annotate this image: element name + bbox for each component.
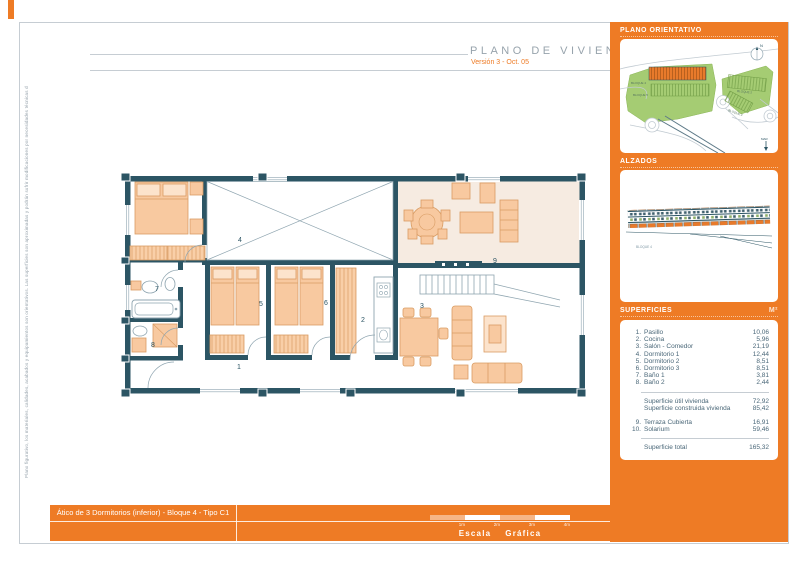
area-row: 2.Cocina5,96	[626, 336, 769, 343]
scale-label: 3m	[500, 522, 535, 527]
table-separator	[641, 438, 769, 439]
elevation-drawing: BLOQUE 4	[620, 170, 778, 302]
svg-text:BLOQUE 5: BLOQUE 5	[633, 93, 648, 97]
scale-label: 4m	[535, 522, 570, 527]
footer-vline	[236, 505, 237, 541]
section-title-orientativo: PLANO ORIENTATIVO	[620, 27, 778, 37]
room-label-salon: 3	[420, 303, 424, 310]
plan-caption: Ático de 3 Dormitorios (inferior) - Bloq…	[50, 505, 236, 521]
corner-mark	[8, 0, 14, 19]
sidebar: PLANO ORIENTATIVO	[610, 22, 788, 542]
room-label-pasillo: 1	[237, 364, 241, 371]
areas-table-box: 1.Pasillo10,06 2.Cocina5,96 3.Salón - Co…	[620, 320, 778, 460]
room-label-cocina: 2	[361, 317, 365, 324]
floor-plan: 1 2 3 4 5 6 7 8 9	[90, 165, 595, 410]
svg-text:MAR: MAR	[761, 137, 769, 141]
furniture-dormitorio2	[210, 267, 259, 353]
scale-label: 2m	[465, 522, 500, 527]
scale-title: EscalaGráfica	[430, 529, 570, 538]
building-facade	[628, 206, 770, 228]
void-cross	[207, 182, 393, 261]
main-avenue	[658, 116, 725, 153]
areas-table: 1.Pasillo10,06 2.Cocina5,96 3.Salón - Co…	[620, 320, 778, 452]
area-row: 1.Pasillo10,06	[626, 329, 769, 336]
area-row: 3.Salón - Comedor21,19	[626, 343, 769, 350]
furniture-salon	[400, 306, 522, 383]
furniture-cocina	[336, 268, 393, 353]
graphic-scale: 1m 2m 3m 4m EscalaGráfica	[430, 515, 570, 541]
area-row: 10.Solarium59,46	[626, 426, 769, 433]
room-label-dorm1: 4	[238, 237, 242, 244]
area-row: 6.Dormitorio 38,51	[626, 365, 769, 372]
title-rule	[90, 54, 468, 55]
plan-sheet: PLANO DE VIVIENDA Versión 3 - Oct. 05 Pl…	[0, 0, 800, 565]
area-row: 8.Baño 22,44	[626, 379, 769, 386]
highlighted-block	[649, 67, 706, 80]
area-row: 5.Dormitorio 28,51	[626, 358, 769, 365]
room-label-dorm3: 6	[324, 300, 328, 307]
north-arrow-icon: N	[751, 43, 763, 60]
total-row: Superficie total165,32	[626, 444, 769, 451]
site-map: BLOQUE 4 BLOQUE 5 BLOQUE 2 BLOQUE 3 N MA…	[620, 39, 778, 153]
room-label-bano1: 7	[155, 286, 159, 293]
footer-bar: Ático de 3 Dormitorios (inferior) - Bloq…	[50, 505, 612, 541]
subtotal-row: Superficie construida vivienda85,42	[626, 405, 769, 412]
furniture-dormitorio1	[130, 182, 205, 260]
area-row: 7.Baño 13,81	[626, 372, 769, 379]
furniture-dormitorio3	[274, 267, 323, 353]
subtotal-row: Superficie útil vivienda72,92	[626, 398, 769, 405]
header-divider	[90, 70, 612, 71]
stairs	[420, 275, 560, 307]
elevation-block-label: BLOQUE 4	[636, 245, 652, 249]
room-label-dorm2: 5	[259, 301, 263, 308]
scale-labels: 1m 2m 3m 4m	[430, 522, 570, 527]
sea-direction-icon: MAR	[761, 137, 769, 151]
section-title-superficies: SUPERFICIES M²	[620, 307, 778, 317]
unit-label: M²	[769, 307, 778, 314]
svg-text:BLOQUE 4: BLOQUE 4	[631, 81, 646, 85]
room-label-terraza: 9	[493, 258, 497, 265]
site-map-box: BLOQUE 4 BLOQUE 5 BLOQUE 2 BLOQUE 3 N MA…	[620, 39, 778, 153]
elevation-box: BLOQUE 4	[620, 170, 778, 302]
section-title-alzados: ALZADOS	[620, 158, 778, 168]
scale-segments	[430, 515, 570, 520]
table-gap	[626, 412, 769, 419]
margin-disclaimer: Plano figurativo, los materiales, calida…	[24, 86, 31, 478]
area-row: 4.Dormitorio 112,44	[626, 351, 769, 358]
svg-text:N: N	[760, 43, 763, 48]
scale-label: 1m	[430, 522, 465, 527]
terrace-railing	[435, 261, 482, 268]
table-separator	[641, 392, 769, 393]
furniture-bano1	[131, 278, 180, 319]
room-label-bano2: 8	[151, 342, 155, 349]
area-row: 9.Terraza Cubierta16,91	[626, 419, 769, 426]
